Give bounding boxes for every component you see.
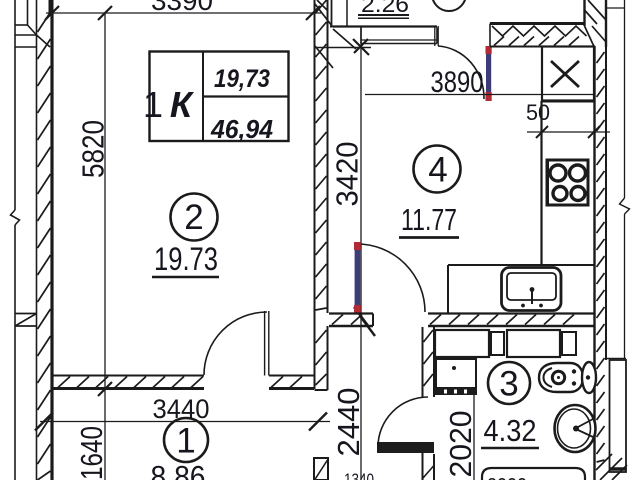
svg-text:2000: 2000	[487, 475, 527, 480]
svg-text:К: К	[170, 84, 195, 125]
svg-text:3: 3	[499, 365, 518, 404]
svg-text:2: 2	[184, 198, 203, 237]
svg-text:1: 1	[176, 422, 195, 461]
svg-text:3890: 3890	[431, 66, 484, 99]
svg-text:11.77: 11.77	[401, 202, 457, 237]
svg-text:19.73: 19.73	[154, 241, 218, 277]
svg-text:8.86: 8.86	[151, 459, 206, 480]
svg-text:3440: 3440	[153, 394, 210, 424]
svg-text:19,73: 19,73	[214, 65, 270, 93]
svg-text:1: 1	[143, 84, 163, 125]
svg-text:2020: 2020	[443, 411, 478, 478]
svg-text:5820: 5820	[76, 120, 111, 178]
svg-text:46,94: 46,94	[210, 114, 273, 144]
svg-text:50: 50	[526, 100, 550, 125]
svg-text:2440: 2440	[331, 388, 366, 457]
svg-text:4.32: 4.32	[484, 413, 537, 448]
svg-text:1640: 1640	[74, 426, 109, 480]
svg-text:1340: 1340	[344, 470, 374, 480]
svg-text:3420: 3420	[330, 142, 365, 207]
svg-text:4: 4	[428, 151, 447, 190]
svg-text:3390: 3390	[151, 0, 213, 16]
